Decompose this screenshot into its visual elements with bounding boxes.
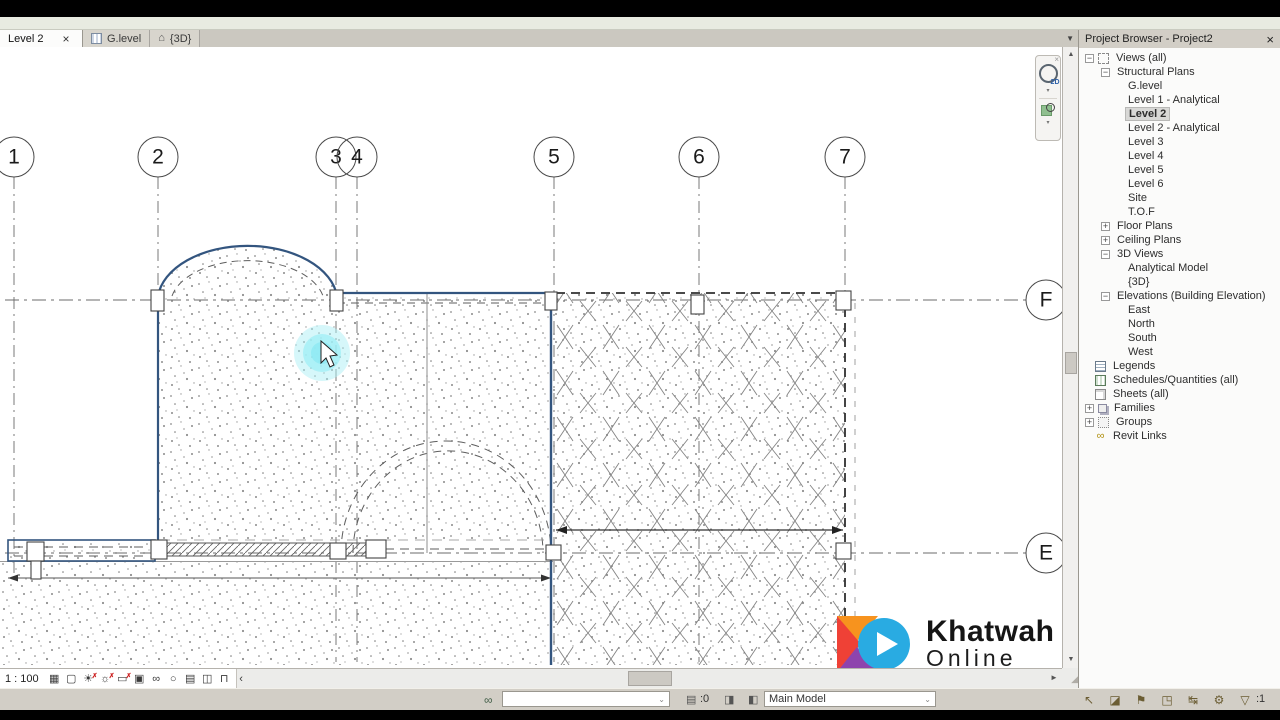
tree-item-label: Floor Plans	[1114, 220, 1176, 232]
temporary-hide-isolate-icon[interactable]: ∞	[149, 671, 164, 687]
groups-icon	[1098, 417, 1109, 428]
select-elements-by-face-toggle-icon[interactable]: ◳	[1158, 691, 1176, 709]
tree-item-floor-plans[interactable]: +Floor Plans	[1079, 219, 1280, 233]
background-processes-icon[interactable]: ⚙	[1210, 691, 1228, 709]
expand-icon[interactable]: +	[1101, 236, 1110, 245]
collapse-icon[interactable]: −	[1101, 292, 1110, 301]
view-tabs: Level 2×G.level⌂{3D}	[0, 30, 1078, 47]
tree-item-label: Level 2	[1125, 107, 1170, 121]
tree-item-label: Ceiling Plans	[1114, 234, 1184, 246]
vertical-scrollbar[interactable]: ▲ ▼	[1062, 47, 1078, 668]
house-icon: ⌂	[158, 33, 165, 44]
tree-item-east[interactable]: East	[1079, 303, 1280, 317]
sun-path-icon[interactable]: ☀✗	[81, 671, 96, 687]
steering-wheel-icon[interactable]: 2D	[1039, 64, 1058, 83]
navigation-bar[interactable]: × 2D ▾ ▾	[1035, 55, 1061, 141]
grid-label-E: E	[1039, 542, 1053, 565]
tree-item-structural-plans[interactable]: −Structural Plans	[1079, 65, 1280, 79]
khatwah-logo: Khatwah Online	[836, 615, 1055, 668]
project-browser-tree: −Views (all)−Structural PlansG.levelLeve…	[1079, 48, 1280, 443]
tree-item-label: Families	[1111, 402, 1158, 414]
project-browser-panel: Project Browser - Project2 × −Views (all…	[1078, 30, 1280, 688]
tree-item-views-all[interactable]: −Views (all)	[1079, 51, 1280, 65]
grid-label-5: 5	[548, 146, 560, 169]
tree-item-south[interactable]: South	[1079, 331, 1280, 345]
families-icon	[1098, 404, 1107, 413]
tree-item-label: T.O.F	[1125, 206, 1158, 218]
tree-item-schedules-quantities-all[interactable]: Schedules/Quantities (all)	[1079, 373, 1280, 387]
project-browser-title: Project Browser - Project2	[1085, 33, 1213, 45]
chevron-down-icon: ⌄	[658, 695, 665, 704]
legends-icon	[1095, 361, 1106, 372]
tree-item-label: North	[1125, 318, 1158, 330]
tree-item-label: Level 3	[1125, 136, 1166, 148]
tree-item-label: {3D}	[1125, 276, 1152, 288]
tree-item-legends[interactable]: Legends	[1079, 359, 1280, 373]
tree-item-label: Level 6	[1125, 178, 1166, 190]
tree-item-g-level[interactable]: G.level	[1079, 79, 1280, 93]
schedules-icon	[1095, 375, 1106, 386]
window-bottom-bar	[0, 710, 1280, 720]
tree-item-label: G.level	[1125, 80, 1165, 92]
tab-list-icon[interactable]: ▼	[1066, 34, 1074, 43]
visual-style-icon[interactable]: ▢	[64, 671, 79, 687]
tree-item-families[interactable]: +Families	[1079, 401, 1280, 415]
tab-3d[interactable]: ⌂{3D}	[150, 30, 200, 47]
grid-label-F: F	[1040, 289, 1053, 312]
view-control-bar: 1 : 100 ▦▢☀✗☼✗▭✗▣∞○▤◫⊓‹	[0, 669, 237, 689]
tree-item-site[interactable]: Site	[1079, 191, 1280, 205]
tree-item-label: Elevations (Building Elevation)	[1114, 290, 1269, 302]
revit-window: Level 2×G.level⌂{3D} ▼	[0, 0, 1280, 720]
views-icon	[1098, 53, 1109, 64]
navbar-divider	[1039, 98, 1057, 99]
filter-icon[interactable]: ▽	[1236, 691, 1254, 709]
logo-subtitle: Online	[926, 646, 1055, 668]
tree-item-north[interactable]: North	[1079, 317, 1280, 331]
active-workset-dropdown[interactable]: ⌄	[502, 691, 670, 707]
drawing-canvas[interactable]: 1234567FE	[0, 47, 1062, 668]
tab-close-icon[interactable]: ×	[62, 34, 69, 44]
tree-item-label: Views (all)	[1113, 52, 1170, 64]
tab-level-2[interactable]: Level 2×	[0, 30, 83, 47]
drawing-area[interactable]: 1234567FE	[0, 47, 1062, 668]
tree-item-label: Level 1 - Analytical	[1125, 94, 1223, 106]
canvas-bottom-strip: 1 : 100 ▦▢☀✗☼✗▭✗▣∞○▤◫⊓‹ ►	[0, 668, 1062, 688]
drag-elements-on-selection-toggle-icon[interactable]: ↹	[1184, 691, 1202, 709]
tree-item-label: Legends	[1110, 360, 1158, 372]
crop-view-icon[interactable]: ▭✗	[115, 671, 130, 687]
temporary-view-properties-icon[interactable]: ▤	[183, 671, 198, 687]
tree-item-label: South	[1125, 332, 1160, 344]
tab-g-level[interactable]: G.level	[83, 30, 150, 47]
chevron-down-icon: ⌄	[924, 695, 931, 704]
tree-item-label: Revit Links	[1110, 430, 1170, 442]
collapse-icon[interactable]: −	[1101, 68, 1110, 77]
shadows-icon[interactable]: ☼✗	[98, 671, 113, 687]
tree-item-label: Level 2 - Analytical	[1125, 122, 1223, 134]
horizontal-scroll-thumb[interactable]	[628, 671, 672, 686]
scroll-up-icon[interactable]: ▲	[1063, 47, 1079, 63]
grid-label-1: 1	[8, 146, 20, 169]
navbar-close-icon[interactable]: ×	[1054, 55, 1059, 64]
design-options-icon[interactable]: ◧	[748, 691, 758, 709]
horizontal-scrollbar[interactable]	[236, 669, 1046, 688]
select-pinned-elements-toggle-icon[interactable]: ⚑	[1132, 691, 1150, 709]
tree-item-label: Groups	[1113, 416, 1155, 428]
tab-label: {3D}	[170, 33, 191, 45]
filter-count: :1	[1256, 693, 1265, 705]
view-tab-bar: Level 2×G.level⌂{3D} ▼	[0, 30, 1078, 47]
tree-item-revit-links[interactable]: ∞Revit Links	[1079, 429, 1280, 443]
tree-item-3d-views[interactable]: −3D Views	[1079, 247, 1280, 261]
scroll-right-icon[interactable]: ►	[1046, 669, 1062, 688]
tab-label: G.level	[107, 33, 141, 45]
collapse-icon[interactable]: −	[1085, 54, 1094, 63]
reveal-constraints-icon[interactable]: ⊓	[217, 671, 232, 687]
status-bar: ∞ ⌄ ▤ :0 ◨ ◧ Main Model ⌄ ↖◪⚑◳↹⚙▽ :1	[0, 688, 1280, 710]
tree-item-label: Level 4	[1125, 150, 1166, 162]
tree-item-3d[interactable]: {3D}	[1079, 275, 1280, 289]
select-links-toggle-icon[interactable]: ↖	[1080, 691, 1098, 709]
scroll-down-icon[interactable]: ▼	[1063, 652, 1079, 668]
editing-requests-count: :0	[700, 693, 709, 705]
tree-item-ceiling-plans[interactable]: +Ceiling Plans	[1079, 233, 1280, 247]
select-underlay-elements-toggle-icon[interactable]: ◪	[1106, 691, 1124, 709]
expand-icon[interactable]: +	[1101, 222, 1110, 231]
tree-item-label: Analytical Model	[1125, 262, 1211, 274]
worksharing-icon[interactable]: ∞	[484, 691, 493, 709]
hatch-regions	[0, 246, 845, 665]
tree-item-t-o-f[interactable]: T.O.F	[1079, 205, 1280, 219]
grid-label-7: 7	[839, 146, 851, 169]
sheets-icon	[1095, 389, 1106, 400]
khatwah-logo-mark	[836, 615, 914, 668]
tree-item-level-6[interactable]: Level 6	[1079, 177, 1280, 191]
show-analytical-model-icon[interactable]: ◫	[200, 671, 215, 687]
expand-icon[interactable]: +	[1085, 418, 1094, 427]
zoom-icon[interactable]	[1041, 103, 1055, 115]
tree-item-analytical-model[interactable]: Analytical Model	[1079, 261, 1280, 275]
ribbon-collapsed-strip	[0, 17, 1280, 30]
window-top-bar	[0, 0, 1280, 17]
collapse-icon[interactable]: −	[1101, 250, 1110, 259]
tree-item-sheets-all[interactable]: Sheets (all)	[1079, 387, 1280, 401]
tree-item-label: Level 5	[1125, 164, 1166, 176]
tree-item-west[interactable]: West	[1079, 345, 1280, 359]
tree-item-label: Structural Plans	[1114, 66, 1198, 78]
project-browser-close-icon[interactable]: ×	[1266, 32, 1274, 47]
tree-item-groups[interactable]: +Groups	[1079, 415, 1280, 429]
tree-item-level-2[interactable]: Level 2	[1079, 107, 1280, 121]
tree-item-label: West	[1125, 346, 1156, 358]
tree-item-label: Sheets (all)	[1110, 388, 1172, 400]
grid-label-4: 4	[351, 146, 363, 169]
logo-title: Khatwah	[926, 618, 1055, 646]
tree-item-level-3[interactable]: Level 3	[1079, 135, 1280, 149]
tree-item-label: Schedules/Quantities (all)	[1110, 374, 1241, 386]
grid-label-2: 2	[152, 146, 164, 169]
tree-item-level-2-analytical[interactable]: Level 2 - Analytical	[1079, 121, 1280, 135]
cursor-highlight	[294, 325, 350, 381]
plan-icon	[91, 33, 102, 44]
reveal-hidden-elements-icon[interactable]: ○	[166, 671, 181, 687]
wheel-caret-icon[interactable]: ▾	[1036, 88, 1060, 95]
tree-item-level-5[interactable]: Level 5	[1079, 163, 1280, 177]
resize-grip[interactable]: ◢	[1062, 668, 1078, 688]
tree-item-label: Site	[1125, 192, 1150, 204]
grid-label-3: 3	[330, 146, 342, 169]
tree-item-level-4[interactable]: Level 4	[1079, 149, 1280, 163]
revit-links-icon: ∞	[1095, 431, 1106, 442]
grid-label-6: 6	[693, 146, 705, 169]
tree-item-level-1-analytical[interactable]: Level 1 - Analytical	[1079, 93, 1280, 107]
detail-level-icon[interactable]: ▦	[47, 671, 62, 687]
tree-item-label: 3D Views	[1114, 248, 1166, 260]
show-crop-region-icon[interactable]: ▣	[132, 671, 147, 687]
tree-item-elevations-building-elevation[interactable]: −Elevations (Building Elevation)	[1079, 289, 1280, 303]
view-scale[interactable]: 1 : 100	[5, 673, 39, 685]
project-browser-titlebar[interactable]: Project Browser - Project2 ×	[1079, 30, 1280, 48]
zoom-caret-icon[interactable]: ▾	[1036, 120, 1060, 127]
tab-label: Level 2	[8, 33, 43, 45]
workset-display-icon[interactable]: ◨	[724, 691, 734, 709]
editing-requests-icon[interactable]: ▤	[686, 691, 696, 709]
expand-icon[interactable]: +	[1085, 404, 1094, 413]
tree-item-label: East	[1125, 304, 1153, 316]
vertical-scroll-thumb[interactable]	[1065, 352, 1077, 374]
design-option-dropdown[interactable]: Main Model ⌄	[764, 691, 936, 707]
